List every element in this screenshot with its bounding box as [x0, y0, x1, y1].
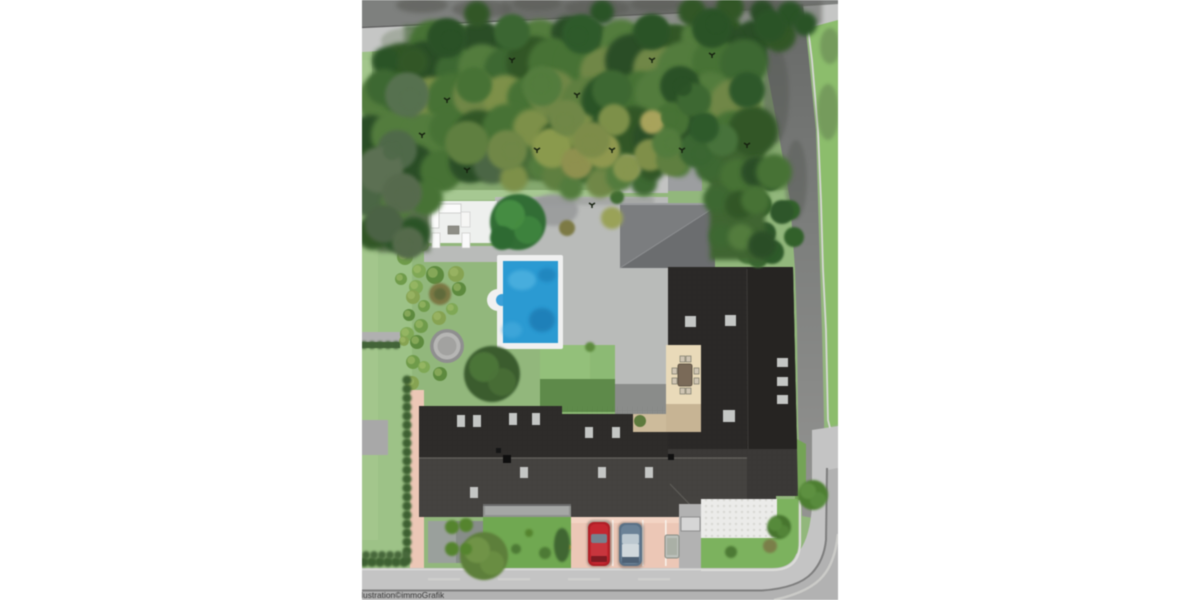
- svg-text:Illustration©immoGrafik: Illustration©immoGrafik: [362, 590, 445, 600]
